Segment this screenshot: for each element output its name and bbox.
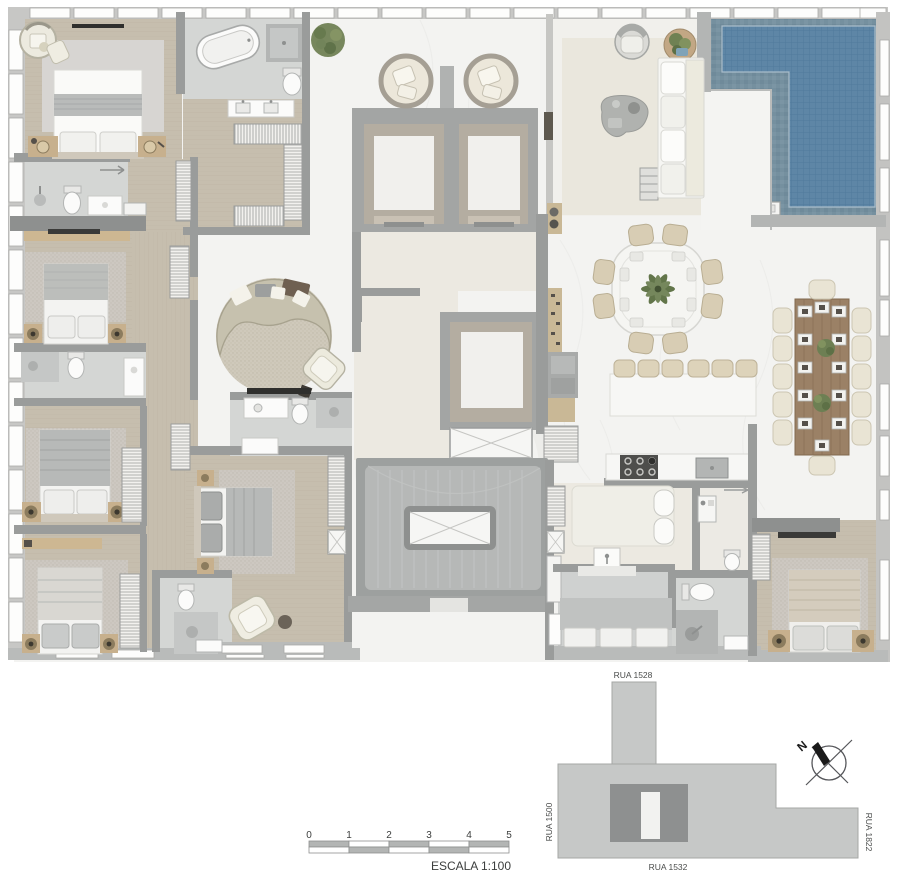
svg-text:2: 2	[386, 830, 392, 841]
svg-text:RUA 1822: RUA 1822	[864, 813, 874, 852]
svg-text:0: 0	[306, 830, 312, 841]
svg-text:3: 3	[426, 830, 432, 841]
svg-text:5: 5	[506, 830, 512, 841]
svg-text:1: 1	[346, 830, 352, 841]
svg-text:ESCALA 1:100: ESCALA 1:100	[431, 859, 511, 873]
svg-text:RUA 1528: RUA 1528	[614, 670, 653, 680]
svg-text:RUA 1500: RUA 1500	[544, 802, 554, 841]
svg-text:4: 4	[466, 830, 472, 841]
svg-text:RUA 1532: RUA 1532	[649, 862, 688, 872]
